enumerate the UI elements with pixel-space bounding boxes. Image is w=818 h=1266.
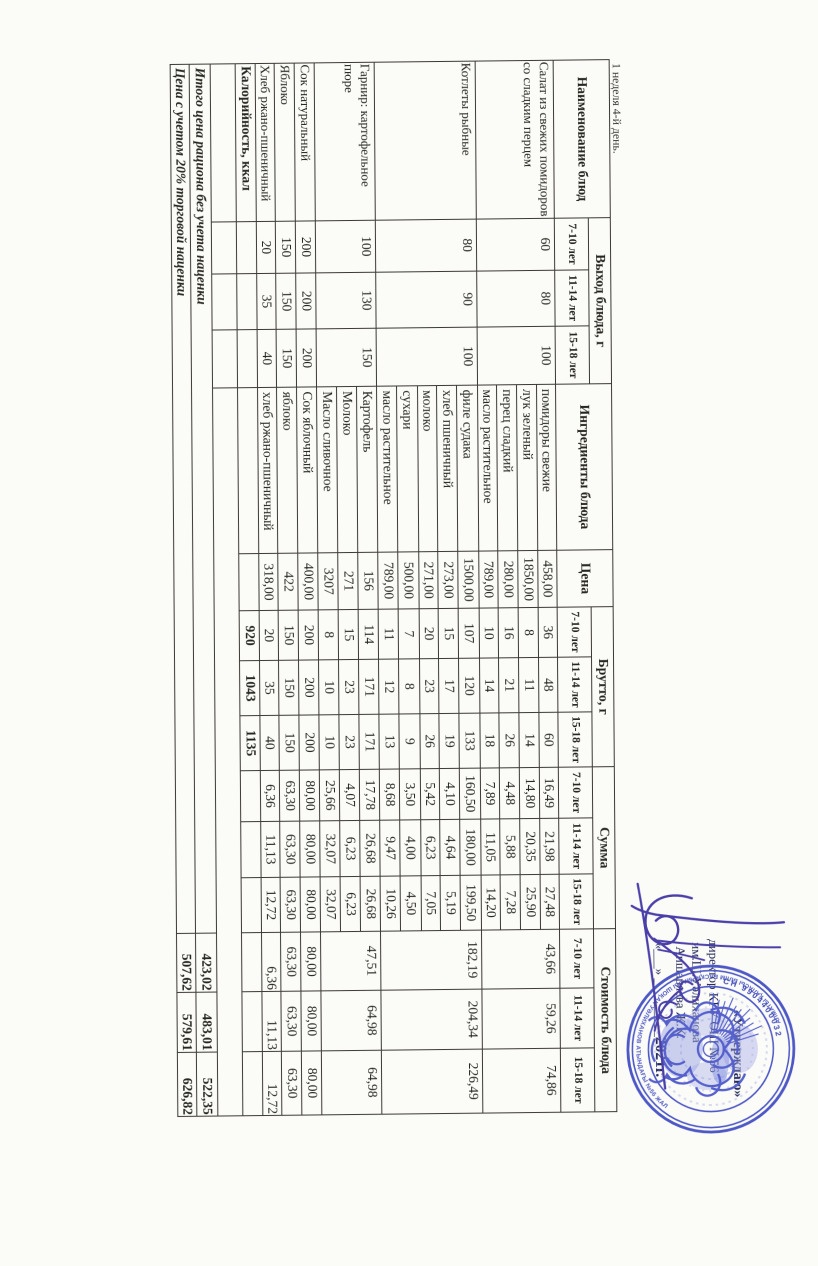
svg-text:СН 990440003230: СН 990440003230 xyxy=(715,0,818,1039)
